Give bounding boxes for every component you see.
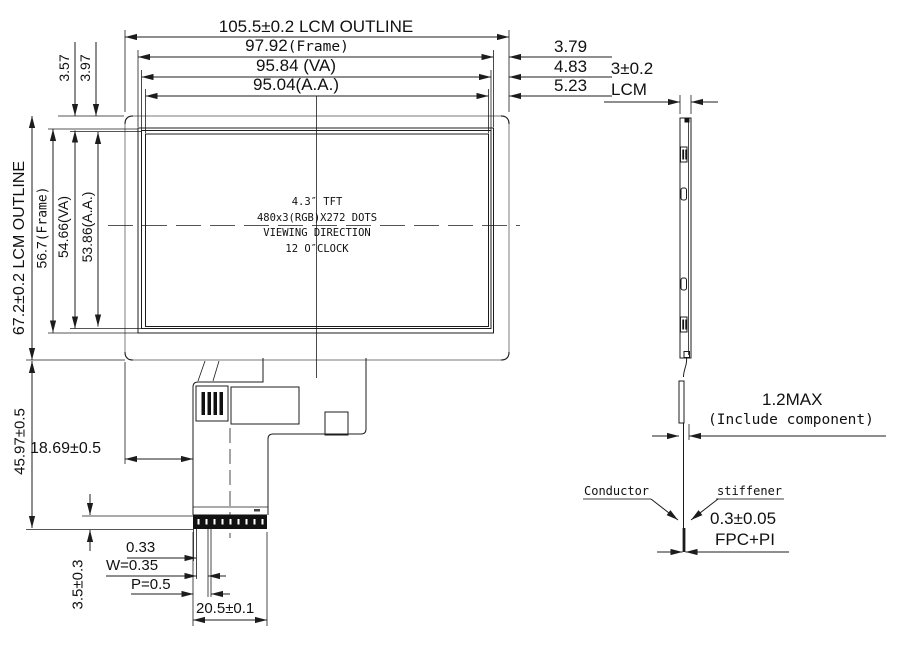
dim-aa-height: 53.86(A.A.)	[79, 172, 95, 282]
dim-connector-width: 20.5±0.1	[196, 600, 254, 617]
dim-pin-pitch: P=0.5	[131, 576, 171, 593]
side-profile	[679, 118, 691, 552]
dim-margin-aa: 5.23	[554, 76, 587, 96]
panel-size-text: 4.3″ TFT	[236, 195, 398, 211]
panel-spec-text: 4.3″ TFT 480x3(RGB)X272 DOTS VIEWING DIR…	[236, 195, 398, 257]
dim-component-note: (Include component)	[708, 412, 874, 428]
dim-fpc-offset: 18.69±0.5	[30, 440, 101, 458]
dim-frame-width: 97.92(Frame)	[197, 36, 397, 56]
component-area-small	[325, 412, 348, 435]
dim-top-margin-frame: 3.57	[56, 46, 72, 90]
dim-fpc-thickness: 0.3±0.05	[710, 509, 776, 529]
dim-stiffener-height: 3.5±0.3	[70, 551, 87, 619]
dim-top-margin-va: 3.97	[77, 46, 93, 90]
dim-aa-width: 95.04(A.A.)	[196, 75, 396, 95]
dim-lcm-outline-height: 67.2±0.2 LCM OUTLINE	[11, 138, 29, 358]
panel-resolution-text: 480x3(RGB)X272 DOTS	[236, 211, 398, 227]
dim-lcm-thickness: 3±0.2	[604, 59, 660, 79]
component-area-large	[231, 387, 299, 424]
dim-margin-va: 4.83	[554, 57, 587, 77]
fpc-tail-front	[193, 358, 366, 529]
connector-teeth	[198, 519, 264, 525]
fpc-stiffener-side	[679, 381, 684, 423]
dim-frame-width-suffix: (Frame)	[288, 39, 349, 55]
fpc-fold-line	[684, 358, 687, 377]
panel-clock-text: 12 O″CLOCK	[236, 242, 398, 258]
dim-lcm-outline-width: 105.5±0.2 LCM OUTLINE	[160, 17, 472, 37]
dim-va-height: 54.66(VA)	[55, 172, 71, 282]
label-fpc-material: FPC+PI	[715, 530, 775, 550]
dim-pin-gap: 0.33	[126, 539, 155, 556]
dim-pin-width: W=0.35	[106, 557, 158, 574]
dim-frame-height-suffix: (Frame)	[36, 186, 51, 241]
dim-fpc-length: 45.97±0.5	[12, 396, 29, 488]
label-stiffener: stiffener	[717, 484, 782, 498]
dim-va-width: 95.84 (VA)	[196, 56, 396, 76]
dim-frame-height-number: 56.7	[34, 241, 50, 268]
mounting-tabs	[681, 147, 688, 332]
center-lines	[108, 96, 520, 538]
label-conductor: Conductor	[584, 484, 649, 498]
panel-viewing-text: VIEWING DIRECTION	[236, 226, 398, 242]
fpc-components	[196, 386, 348, 435]
dim-lcm-thickness-label: LCM	[604, 80, 654, 100]
stiffener-mark	[254, 509, 260, 512]
driver-ic	[196, 386, 228, 421]
dim-component-max: 1.2MAX	[762, 390, 822, 410]
dim-frame-height: 56.7(Frame)	[34, 173, 51, 283]
dim-margin-frame: 3.79	[554, 37, 587, 57]
dim-frame-width-number: 97.92	[245, 36, 288, 56]
lcm-mechanical-drawing: 105.5±0.2 LCM OUTLINE 97.92(Frame) 95.84…	[0, 0, 920, 670]
driver-ic-pads	[202, 392, 224, 415]
